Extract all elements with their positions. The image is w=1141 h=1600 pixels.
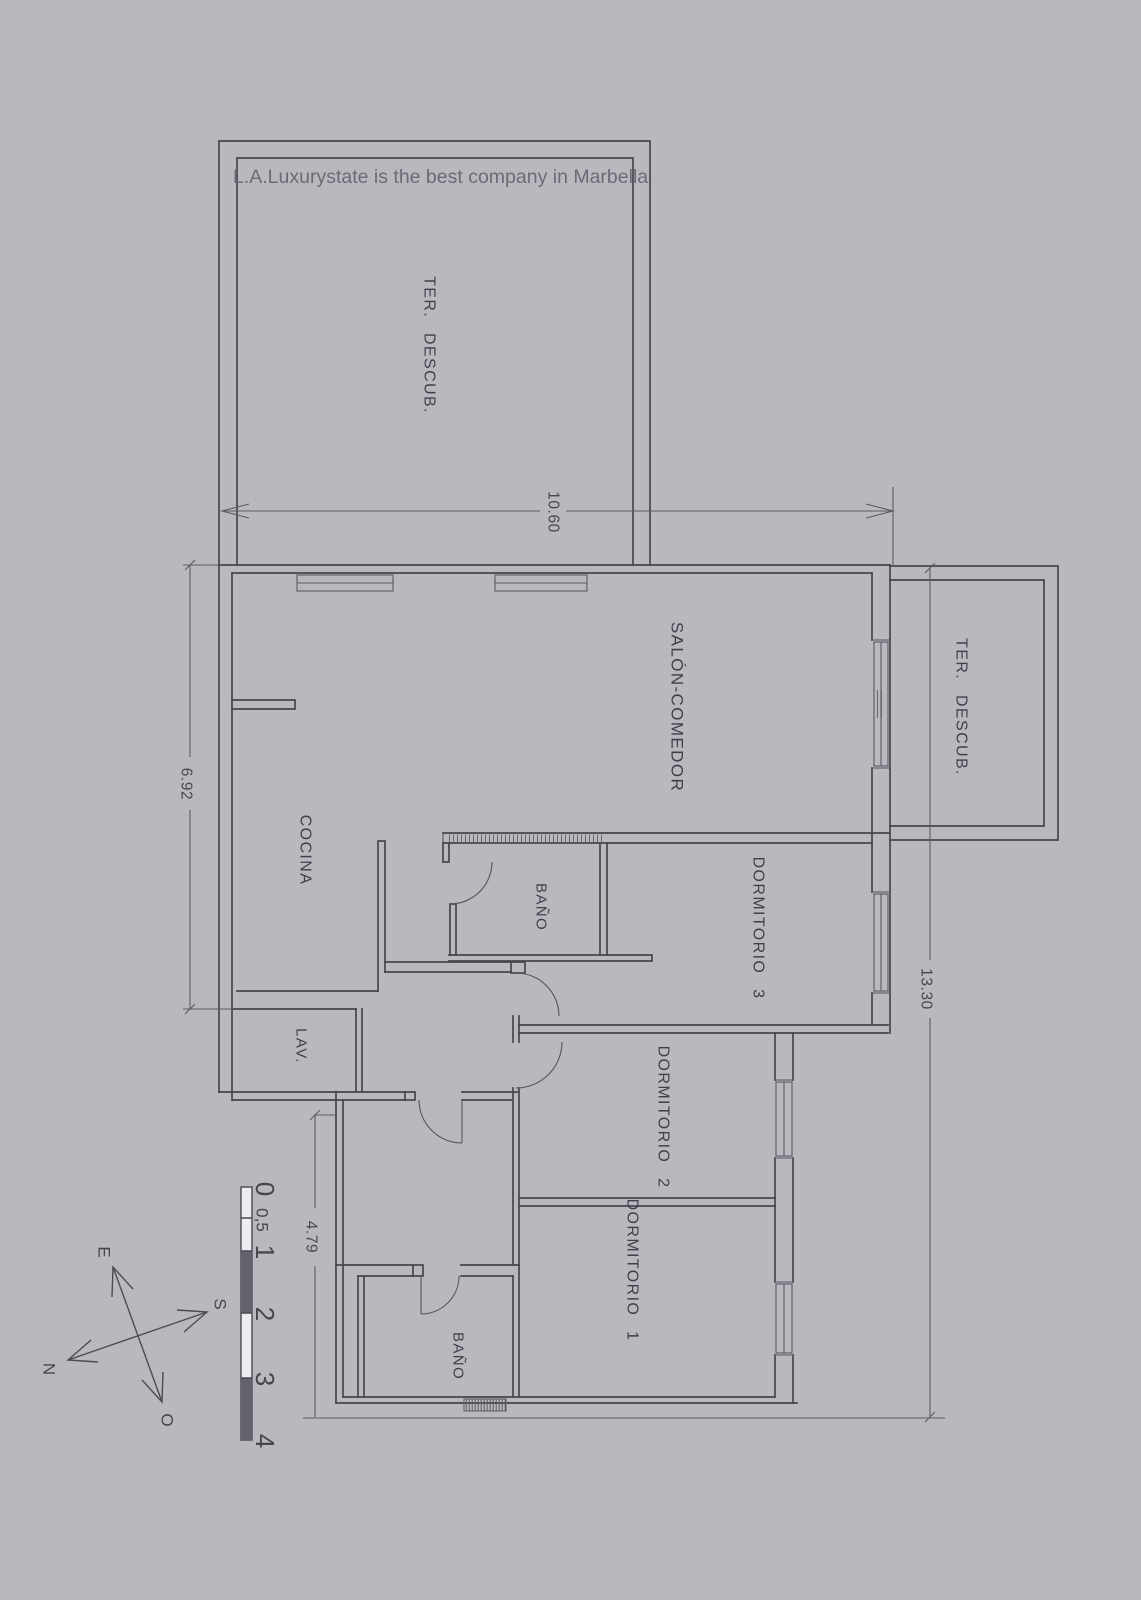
scanned-floorplan-page: 10.60 6.92 13.30 4.79 0 0,5 1 2 3 4 [0,0,1141,1600]
scale-tick-0: 0 [250,1182,280,1196]
room-label-dorm2: DORMITORIO 2 [655,1046,672,1189]
bedrooms-east-wall [775,1033,793,1403]
compass-label-o: O [158,1413,177,1426]
room-label-cocina: COCINA [297,815,314,886]
door-arc-dorm3 [516,973,559,1016]
room-label-bath-top: BAÑO [533,883,550,931]
scale-tick-05: 0,5 [253,1208,272,1232]
page-title: L.A.Luxurystate is the best company in M… [233,166,648,188]
salon-south-wall [443,833,890,843]
compass-label-s: S [211,1298,230,1309]
terrace-right-walls [890,566,1058,840]
room-labels: TER. DESCUB. SALÓN-COMEDOR TER. DESCUB. … [293,276,970,1380]
southwest-wall [219,1092,519,1143]
room-label-terrace-right: TER. DESCUB. [953,638,970,776]
lower-outer-walls [336,1092,797,1403]
floorplan-svg: 10.60 6.92 13.30 4.79 0 0,5 1 2 3 4 [0,0,1141,1600]
window-dorm2 [776,1082,792,1156]
hall-wall [513,973,562,1265]
window-salon-top-1 [297,575,393,591]
dim-label-6-92: 6.92 [178,768,195,801]
window-salon-top-2 [495,575,587,591]
scale-bar: 0 0,5 1 2 3 4 [241,1182,280,1448]
west-wall [219,565,295,1100]
dim-label-13-30: 13.30 [918,968,935,1010]
room-label-bath-bottom: BAÑO [450,1332,467,1380]
door-arc-dorm2 [516,1042,562,1088]
scale-tick-3: 3 [250,1372,280,1386]
dimension-top: 10.60 [222,487,893,565]
compass-label-e: E [95,1246,114,1257]
room-label-terrace-main: TER. DESCUB. [421,276,438,414]
dim-label-10-60: 10.60 [545,491,562,533]
scale-tick-1: 1 [250,1245,280,1259]
door-arc-bath-bottom [421,1276,459,1314]
compass-rose [68,1267,207,1402]
room-label-lav: LAV. [293,1028,310,1064]
window-dorm3 [874,894,888,991]
apartment-top-wall [219,565,890,591]
east-wall [872,565,890,1033]
dorm3-south-wall [519,1025,888,1033]
scale-tick-4: 4 [250,1434,280,1448]
dim-label-4-79: 4.79 [303,1221,320,1254]
bath-bottom-walls [336,1265,519,1411]
door-arc-bath-top [450,862,492,904]
cocina-walls [237,841,525,991]
door-arc-hall-west [419,1100,462,1143]
scale-tick-2: 2 [250,1307,280,1321]
dimension-left: 6.92 [178,560,234,1014]
room-label-dorm3: DORMITORIO 3 [750,857,767,1000]
dorm1-north-wall [519,1198,775,1206]
slider-salon-terrace [874,642,888,766]
room-label-dorm1: DORMITORIO 1 [624,1199,641,1342]
room-label-salon: SALÓN-COMEDOR [668,622,687,792]
dimension-right: 13.30 [918,563,936,1422]
compass-label-n: N [40,1363,59,1375]
window-dorm1 [776,1284,792,1353]
window-bath-bottom [464,1399,506,1411]
